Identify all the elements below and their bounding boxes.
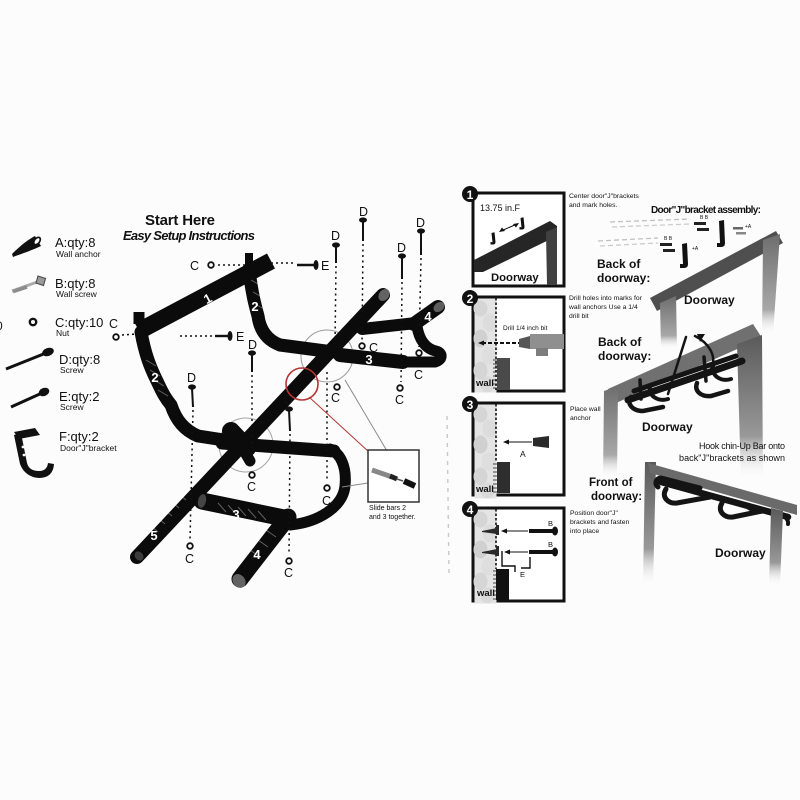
svg-text:2: 2 (467, 292, 474, 306)
svg-text:Doorway: Doorway (642, 420, 693, 434)
svg-text:C: C (284, 566, 293, 580)
svg-text:drill bit: drill bit (569, 313, 589, 320)
svg-text:D: D (359, 205, 368, 219)
svg-text:D: D (416, 216, 425, 230)
svg-text:Back of: Back of (597, 257, 641, 271)
svg-text:C: C (247, 480, 256, 494)
svg-text:wall anchors Use a 1/4: wall anchors Use a 1/4 (568, 304, 638, 311)
svg-text:Screw: Screw (60, 365, 84, 375)
svg-text:Wall anchor: Wall anchor (56, 249, 101, 259)
svg-text:C: C (369, 341, 378, 355)
svg-text:13.75 in.F: 13.75 in.F (480, 203, 521, 213)
svg-text:C: C (331, 391, 340, 405)
svg-text:4: 4 (467, 503, 474, 517)
svg-text:Drill 1/4 inch bit: Drill 1/4 inch bit (503, 325, 548, 332)
svg-text:B: B (548, 519, 553, 528)
svg-text:into place: into place (570, 528, 599, 535)
svg-text:C: C (190, 259, 199, 273)
svg-text:Doorway: Doorway (715, 546, 766, 560)
svg-text:Back of: Back of (598, 335, 642, 349)
svg-text:Drill holes into marks for: Drill holes into marks for (569, 295, 643, 302)
svg-text:Nut: Nut (56, 328, 70, 338)
svg-text:Start Here: Start Here (145, 212, 215, 229)
svg-text:C: C (109, 317, 118, 331)
svg-text:Wall screw: Wall screw (56, 289, 98, 299)
svg-text:3: 3 (467, 398, 474, 412)
svg-text:wall: wall (475, 484, 494, 495)
svg-text:D: D (331, 229, 340, 243)
svg-text:+A: +A (692, 246, 699, 252)
svg-text:E: E (236, 330, 244, 344)
svg-text:E: E (321, 259, 329, 273)
svg-text:brackets and fasten: brackets and fasten (570, 519, 630, 526)
svg-text:Center door"J"brackets: Center door"J"brackets (569, 193, 639, 200)
svg-text:D: D (187, 371, 196, 385)
svg-text:2: 2 (151, 370, 158, 385)
svg-text:Screw: Screw (60, 402, 84, 412)
svg-text:doorway:: doorway: (591, 491, 642, 503)
svg-text:wall: wall (476, 588, 495, 599)
svg-text:anchor: anchor (570, 415, 592, 422)
svg-text:wall: wall (475, 378, 494, 389)
svg-text:Front of: Front of (589, 477, 633, 489)
svg-text:Doorway: Doorway (491, 272, 539, 284)
svg-text:Slide bars 2: Slide bars 2 (369, 505, 406, 512)
svg-text:Hook chin-Up Bar onto: Hook chin-Up Bar onto (699, 441, 785, 451)
svg-text:C: C (185, 552, 194, 566)
svg-text:Door"J"bracket: Door"J"bracket (60, 443, 117, 453)
svg-text:doorway:: doorway: (598, 349, 651, 363)
svg-text:and 3 together.: and 3 together. (369, 514, 416, 521)
svg-text:+A: +A (745, 224, 752, 230)
svg-text:D: D (248, 338, 257, 352)
svg-text:B B: B B (700, 215, 709, 221)
svg-text:doorway:: doorway: (597, 271, 650, 285)
svg-text:D: D (284, 393, 293, 407)
svg-text:A:qty:8: A:qty:8 (55, 235, 95, 250)
svg-text:3: 3 (232, 507, 239, 522)
svg-text:0: 0 (0, 319, 3, 333)
svg-text:D: D (397, 241, 406, 255)
svg-text:B B: B B (664, 236, 673, 242)
svg-text:and mark holes.: and mark holes. (569, 202, 617, 209)
svg-text:B: B (548, 540, 553, 549)
svg-text:Position door"J": Position door"J" (570, 510, 618, 517)
svg-text:5: 5 (150, 528, 157, 543)
svg-text:4: 4 (253, 547, 261, 562)
svg-text:back"J"brackets as shown: back"J"brackets as shown (679, 453, 785, 463)
svg-text:1: 1 (467, 188, 474, 202)
svg-text:2: 2 (251, 299, 258, 314)
svg-text:A: A (520, 449, 526, 459)
svg-text:C: C (414, 368, 423, 382)
svg-text:Easy Setup Instructions: Easy Setup Instructions (123, 228, 255, 243)
svg-text:C: C (322, 494, 331, 508)
svg-text:Doorway: Doorway (684, 293, 735, 307)
svg-text:4: 4 (424, 309, 432, 324)
svg-text:C: C (395, 393, 404, 407)
svg-text:E: E (520, 570, 525, 579)
svg-text:F:qty:2: F:qty:2 (59, 429, 99, 444)
svg-text:Place wall: Place wall (570, 406, 601, 413)
